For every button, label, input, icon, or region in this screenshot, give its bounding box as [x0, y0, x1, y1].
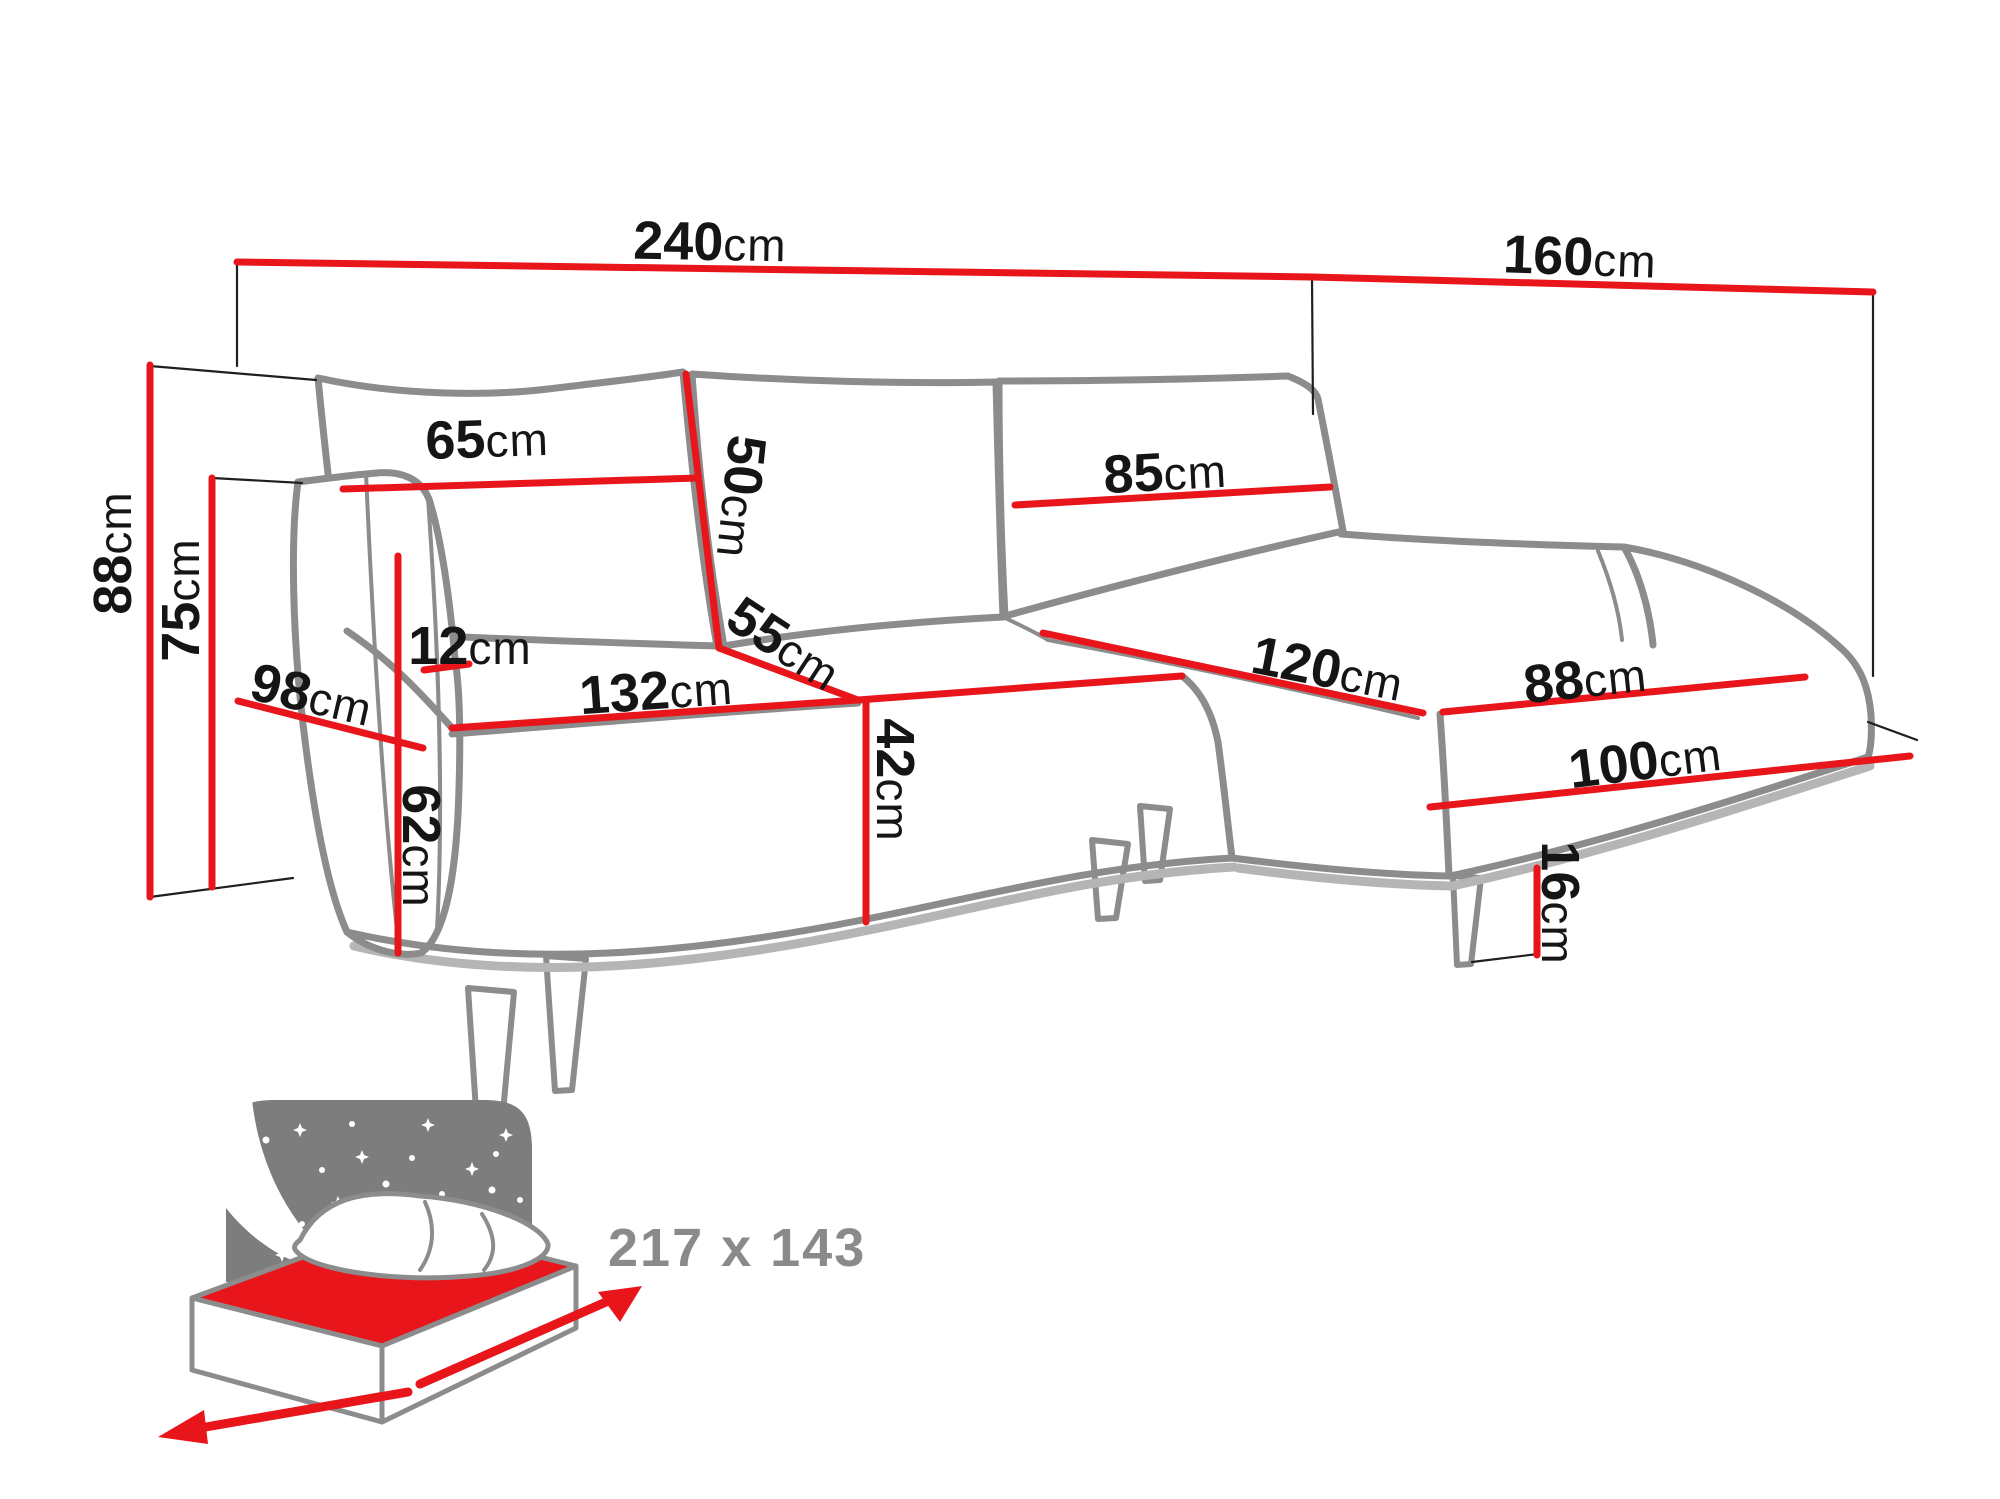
chaise-front-right-edge [1440, 714, 1449, 876]
label-right-back-cushion-width: 85cm [1102, 439, 1228, 505]
label-seat-height: 42cm [865, 718, 925, 841]
armrest-right-top-edge [1341, 534, 1624, 547]
label-backrest-height: 75cm [151, 538, 211, 661]
label-armrest-height: 62cm [391, 784, 451, 907]
armrest-right-outer-edge [1624, 547, 1871, 757]
label-total-width: 240cm [633, 211, 787, 274]
sleeping-area-icon [158, 1100, 642, 1444]
armrest-right-front-edge [1624, 547, 1653, 645]
chaise-left-edge [1182, 676, 1232, 858]
armrest-right-seam [1598, 551, 1622, 640]
label-chaise-total-depth: 160cm [1502, 224, 1657, 289]
middle-cushion-to-chaise-seam [1003, 617, 1048, 640]
chaise-front-edge-highlight [858, 676, 1182, 700]
ref-line-floor-left [150, 878, 293, 897]
sofa-leg-back-left [546, 956, 586, 1091]
width-arrow-head-icon [158, 1410, 208, 1444]
label-chaise-seat-depth: 88cm [1521, 643, 1650, 716]
ref-line-leg-floor [1472, 954, 1538, 962]
label-armrest-top-width: 12cm [408, 616, 531, 676]
ref-line-backrest-top [212, 478, 302, 483]
label-chaise-outer-length: 100cm [1565, 722, 1725, 800]
ref-line-height-top [150, 366, 316, 380]
label-left-back-cushion-width: 65cm [424, 407, 549, 471]
ref-line-chaise-end [1868, 722, 1917, 740]
label-overall-height: 88cm [83, 491, 143, 614]
sofa-dimension-diagram: 240cm 160cm 88cm 75cm 65cm 50cm 85cm 12c… [0, 0, 2000, 1499]
ref-line-corner-vertical [1312, 277, 1313, 414]
sleeping-area-size: 217 x 143 [608, 1218, 866, 1278]
label-chaise-seat-width: 120cm [1247, 625, 1409, 713]
label-leg-height: 16cm [1530, 841, 1590, 964]
